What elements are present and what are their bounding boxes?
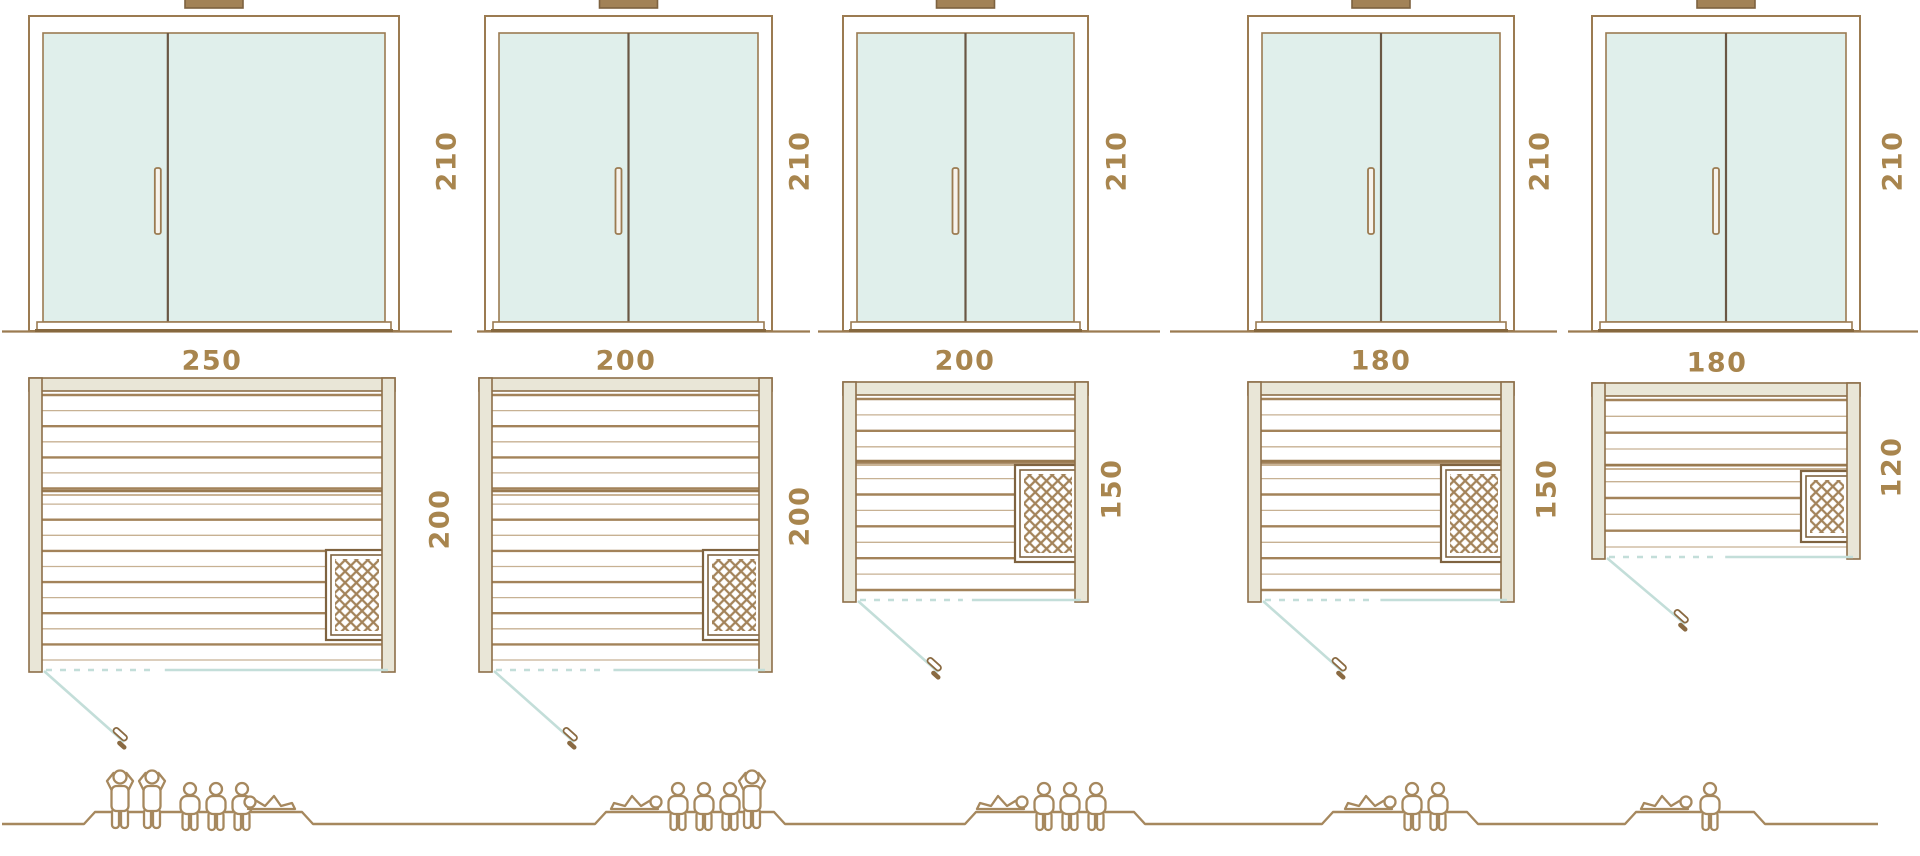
door-height-label: 210 xyxy=(432,131,463,192)
sauna-floor-plan xyxy=(1592,383,1860,633)
capacity-group xyxy=(1641,783,1720,830)
door-handle xyxy=(155,168,161,234)
capacity-baseline xyxy=(2,812,1878,824)
door-handle xyxy=(1368,168,1374,234)
sauna-front-elevation xyxy=(843,0,1088,331)
sauna-heater xyxy=(1801,471,1853,542)
plan-width-label: 180 xyxy=(1351,346,1412,377)
sauna-floor-plan xyxy=(843,382,1088,681)
plan-depth-label: 200 xyxy=(425,489,456,550)
capacity-figures xyxy=(2,771,1878,831)
capacity-group xyxy=(1345,783,1448,830)
sauna-floor-plan xyxy=(479,378,772,751)
sauna-heater xyxy=(1015,465,1081,562)
door-height-label: 210 xyxy=(1102,131,1133,192)
sauna-floor-plan xyxy=(29,378,395,751)
sauna-heater xyxy=(1441,465,1507,562)
door-swing xyxy=(494,670,765,751)
plan-width-label: 180 xyxy=(1687,348,1748,379)
sauna-heater xyxy=(326,550,388,640)
door-handle xyxy=(616,168,622,234)
sauna-front-elevation xyxy=(1592,0,1860,331)
door-swing xyxy=(44,670,388,751)
door-height-label: 210 xyxy=(1525,131,1556,192)
door-swing xyxy=(858,600,1081,681)
sauna-heater xyxy=(703,550,765,640)
door-swing xyxy=(1607,557,1853,633)
sauna-front-elevation xyxy=(1248,0,1514,331)
door-swing xyxy=(1263,600,1507,681)
sauna-diagrams-svg xyxy=(0,0,1920,856)
sauna-size-diagram: 210 250 200 210 200 200 210 200 150 210 … xyxy=(0,0,1920,856)
capacity-group xyxy=(611,771,765,831)
capacity-group xyxy=(977,783,1106,830)
door-handle xyxy=(953,168,959,234)
door-handle xyxy=(1713,168,1719,234)
capacity-group xyxy=(107,771,295,831)
plan-depth-label: 200 xyxy=(785,486,816,547)
plan-depth-label: 120 xyxy=(1877,437,1908,498)
door-height-label: 210 xyxy=(785,131,816,192)
sauna-front-elevation xyxy=(485,0,772,331)
plan-width-label: 250 xyxy=(182,346,243,377)
plan-width-label: 200 xyxy=(596,346,657,377)
sauna-floor-plan xyxy=(1248,382,1514,681)
plan-depth-label: 150 xyxy=(1097,459,1128,520)
plan-depth-label: 150 xyxy=(1532,459,1563,520)
door-height-label: 210 xyxy=(1878,131,1909,192)
plan-width-label: 200 xyxy=(935,346,996,377)
sauna-front-elevation xyxy=(29,0,399,331)
